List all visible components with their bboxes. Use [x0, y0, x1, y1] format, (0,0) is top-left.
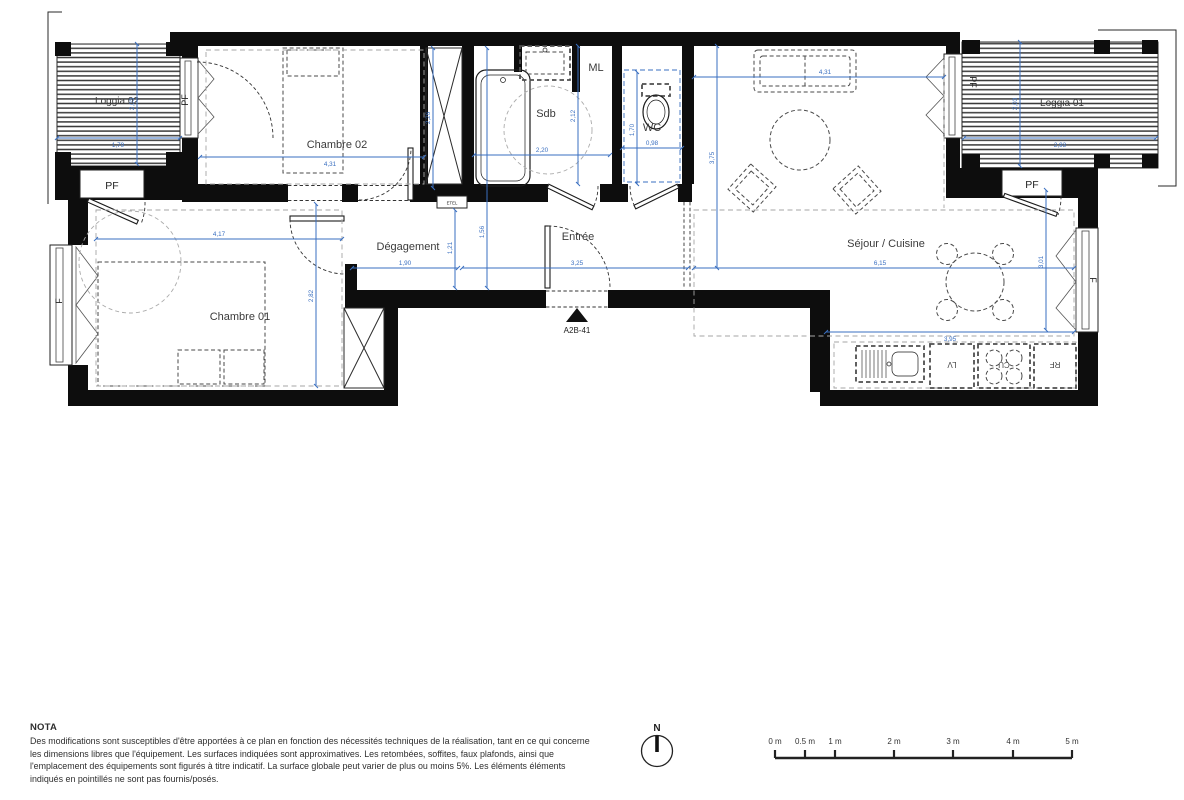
nota-body: Des modifications sont susceptibles d'êt…: [30, 735, 596, 786]
sdb-label: Sdb: [536, 108, 556, 120]
window-f-sejour: F: [1056, 228, 1098, 332]
dining-table: [937, 244, 1014, 321]
dim-sejour-right: 3,01: [1038, 255, 1045, 268]
washbasin: [520, 46, 570, 80]
dim-degagement-w: 1,90: [399, 260, 412, 267]
dim-loggia02-w: 1,79: [112, 142, 125, 149]
f-label: F: [54, 298, 64, 304]
f-label: F: [1088, 277, 1098, 283]
scale-tick-1: 0.5 m: [795, 737, 815, 746]
floor-plan-drawing: Loggia 02 Loggia 01: [0, 0, 1184, 800]
scale-tick-6: 5 m: [1065, 737, 1079, 746]
pf-label: PF: [968, 76, 978, 88]
dim-wc-h: 1,70: [629, 123, 636, 136]
floor-plan-page: Loggia 02 Loggia 01: [0, 0, 1184, 800]
north-label: N: [653, 723, 660, 734]
scale-tick-3: 2 m: [887, 737, 901, 746]
wc-label: WC: [643, 122, 661, 134]
scale-tick-4: 3 m: [946, 737, 960, 746]
dim-wc-w: 0,98: [646, 140, 659, 147]
dim-degagement-a: 1,21: [447, 241, 454, 254]
loggia-01-label: Loggia 01: [1040, 98, 1084, 109]
kitchen-units: LV CU RF: [834, 342, 1076, 388]
sink-basin: [892, 352, 918, 376]
door-wc-leaf: [634, 184, 679, 209]
north-compass: N: [642, 723, 673, 767]
entrance-marker: A2B-41: [564, 308, 591, 335]
room-labels: Chambre 02 Sdb ML WC Séjour / Cuisine Ch…: [210, 62, 925, 323]
door-chambre01-leaf: [290, 216, 344, 221]
dim-loggia02-h: 2,03: [129, 97, 136, 110]
armchair-left: [728, 164, 776, 212]
coffee-table: [770, 110, 830, 170]
zones: [79, 50, 1074, 386]
fridge-label: RF: [1050, 360, 1061, 369]
dim-sdb-w: 2,20: [536, 147, 549, 154]
pf-label: PF: [180, 94, 190, 106]
dim-sejour-left: 3,75: [709, 151, 716, 164]
dim-chambre01-h: 2,82: [308, 289, 315, 302]
pf-label: PF: [1025, 179, 1038, 191]
dishwasher-label: LV: [947, 360, 957, 369]
nota-block: NOTA Des modifications sont susceptibles…: [30, 722, 596, 786]
window-pf-chambre02: PF: [180, 58, 214, 138]
sejour-label: Séjour / Cuisine: [847, 238, 925, 250]
wardrobe-box: [344, 308, 384, 388]
dim-sdb-h: 2,12: [570, 109, 577, 122]
degagement-label: Dégagement: [377, 241, 440, 253]
dim-sejour-top: 4,31: [819, 69, 832, 76]
scale-tick-0: 0 m: [768, 737, 782, 746]
etel-label: ETEL: [447, 201, 458, 206]
chambre02-label: Chambre 02: [307, 139, 368, 151]
bed-chambre02: [283, 48, 343, 173]
scale-tick-2: 1 m: [828, 737, 842, 746]
hob-label: CU: [998, 360, 1010, 369]
dim-sejour-mid: 6,15: [874, 260, 887, 267]
scale-tick-5: 4 m: [1006, 737, 1020, 746]
dim-loggia01-w: 2,93: [1054, 142, 1067, 149]
window-pf-loggia01: PF: [1002, 170, 1062, 196]
sofa: [754, 50, 856, 92]
dim-loggia01-h: 2,03: [1012, 97, 1019, 110]
window-f-chambre01: F: [50, 245, 98, 365]
chambre01-label: Chambre 01: [210, 311, 271, 323]
door-chambre02-leaf: [408, 148, 413, 200]
dim-shaft-h: 2,26: [425, 111, 432, 124]
unit-code-label: A2B-41: [564, 326, 591, 335]
dim-sejour-low: 3,95: [944, 336, 957, 343]
window-pf-loggia02: PF: [80, 170, 144, 198]
ml-label: ML: [588, 62, 603, 74]
entrance-door-leaf: [545, 226, 550, 288]
dim-chambre01-w: 4,17: [213, 231, 226, 238]
entree-label: Entrée: [562, 231, 594, 243]
scale-bar: 0 m 0.5 m 1 m 2 m 3 m 4 m 5 m: [768, 737, 1079, 758]
dim-chambre02-w: 4,31: [324, 161, 337, 168]
sink-drainer: [862, 350, 886, 378]
furniture: LV CU RF: [98, 46, 1076, 388]
dim-degagement-b: 1,56: [479, 225, 486, 238]
nota-title: NOTA: [30, 722, 596, 733]
armchair-right: [833, 166, 881, 214]
bathtub: [476, 70, 530, 186]
bed-chambre01: [98, 262, 265, 386]
door-sdb-leaf: [547, 184, 594, 210]
dim-entree-w: 3,25: [571, 260, 584, 267]
pf-label: PF: [105, 180, 118, 192]
etel-box: ETEL: [437, 196, 467, 208]
